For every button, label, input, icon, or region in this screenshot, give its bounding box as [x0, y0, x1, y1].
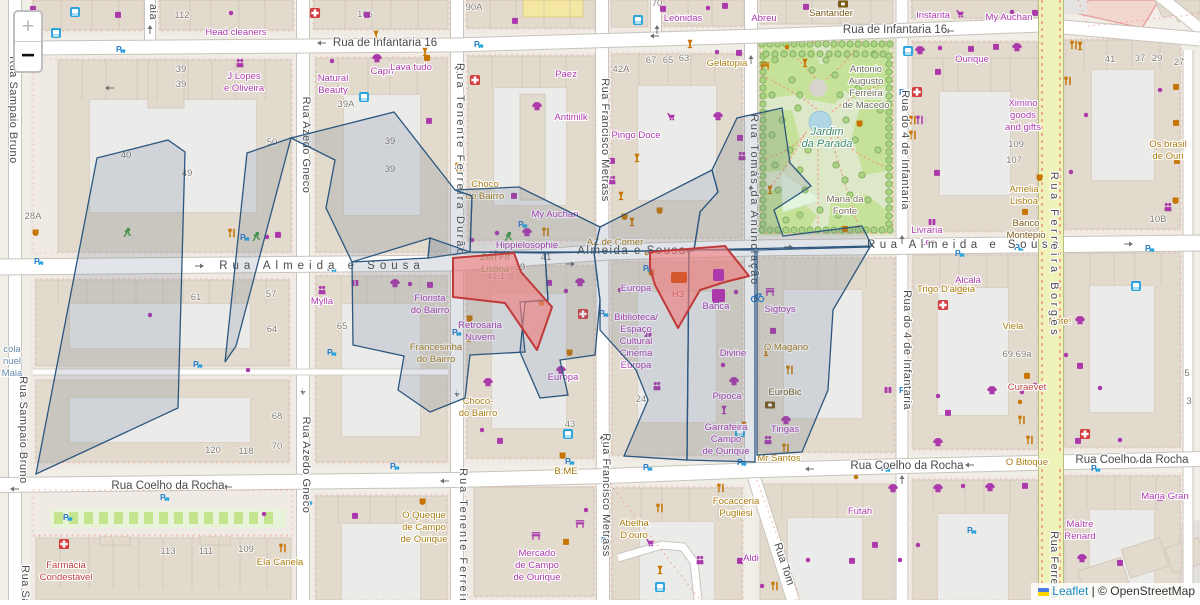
svg-text:67: 67: [646, 55, 657, 66]
svg-text:My Auchan: My Auchan: [986, 12, 1033, 23]
svg-text:29: 29: [1152, 53, 1163, 64]
svg-text:da Parada: da Parada: [802, 138, 853, 150]
svg-text:Maria Gran: Maria Gran: [1141, 491, 1189, 502]
svg-text:Mylla: Mylla: [311, 296, 334, 307]
svg-text:41: 41: [1105, 54, 1116, 65]
svg-text:Rua Azedo Gneco: Rua Azedo Gneco: [300, 417, 312, 514]
svg-text:O Queque: O Queque: [402, 510, 446, 521]
svg-text:Rua do 4 de Infantaria: Rua do 4 de Infantaria: [899, 90, 911, 210]
svg-text:Banco: Banco: [1013, 218, 1040, 229]
svg-text:Paez: Paez: [555, 69, 577, 80]
svg-text:Rua de Infantaria 16: Rua de Infantaria 16: [843, 24, 947, 36]
svg-text:e Oliveira: e Oliveira: [224, 83, 265, 94]
svg-text:10B: 10B: [1150, 214, 1167, 225]
svg-text:Rua Ferreira Borges: Rua Ferreira Borges: [1048, 172, 1060, 338]
svg-text:Focacceria: Focacceria: [713, 496, 760, 507]
svg-text:goods: goods: [1010, 110, 1036, 121]
svg-text:Santander: Santander: [809, 8, 853, 19]
svg-text:Rua Sa: Rua Sa: [19, 565, 31, 600]
svg-text:63: 63: [679, 53, 690, 64]
svg-text:Abelha: Abelha: [619, 518, 649, 529]
svg-text:39: 39: [176, 64, 187, 75]
svg-text:64: 64: [267, 324, 278, 335]
svg-text:3: 3: [1186, 396, 1191, 407]
svg-text:39: 39: [176, 79, 187, 90]
svg-text:Gelatopia: Gelatopia: [707, 58, 748, 69]
svg-text:Abreu: Abreu: [751, 13, 776, 24]
svg-text:Pingo Doce: Pingo Doce: [611, 130, 660, 141]
svg-text:39A: 39A: [338, 99, 356, 110]
svg-text:Amelia: Amelia: [1009, 184, 1039, 195]
svg-text:Rua Francisco Metrass: Rua Francisco Metrass: [599, 78, 611, 202]
svg-text:109: 109: [238, 544, 254, 555]
svg-text:Maria da: Maria da: [827, 194, 865, 205]
svg-text:24: 24: [636, 394, 647, 405]
svg-text:111: 111: [199, 546, 213, 557]
svg-text:69.69a: 69.69a: [1002, 349, 1032, 360]
svg-text:28A: 28A: [25, 211, 43, 222]
svg-text:Viela: Viela: [1003, 321, 1025, 332]
svg-text:de Ouri: de Ouri: [1152, 151, 1183, 162]
svg-text:107: 107: [1006, 155, 1022, 166]
svg-text:5: 5: [1184, 368, 1189, 379]
svg-text:Ourique: Ourique: [955, 54, 989, 65]
svg-text:Os brasil: Os brasil: [1149, 139, 1186, 150]
svg-text:J Lopes: J Lopes: [227, 71, 261, 82]
svg-text:cola: cola: [3, 344, 21, 355]
svg-text:Rua do 4 de Infantaria: Rua do 4 de Infantaria: [901, 290, 913, 410]
svg-text:112: 112: [174, 10, 189, 21]
svg-text:Beauty: Beauty: [318, 85, 348, 96]
svg-text:Rua Tenente Ferreira: Rua Tenente Ferreira: [457, 468, 469, 600]
svg-text:Renard: Renard: [1064, 531, 1095, 542]
svg-text:nuel: nuel: [3, 356, 21, 367]
svg-text:de Ourique: de Ourique: [400, 534, 447, 545]
svg-text:43: 43: [565, 419, 576, 430]
svg-text:61: 61: [191, 292, 202, 303]
svg-text:68: 68: [272, 411, 283, 422]
svg-text:57: 57: [266, 289, 277, 300]
svg-text:do Bairro: do Bairro: [459, 408, 498, 419]
svg-text:de Campo: de Campo: [402, 522, 446, 533]
svg-text:113: 113: [160, 546, 175, 557]
svg-text:O Bitoque: O Bitoque: [1006, 457, 1048, 468]
svg-text:Instanta: Instanta: [916, 10, 951, 21]
svg-text:27: 27: [1174, 57, 1185, 68]
svg-text:Condestável: Condestável: [40, 572, 93, 583]
svg-text:Farmácia: Farmácia: [46, 560, 86, 571]
svg-text:de Ourique: de Ourique: [513, 572, 560, 583]
svg-text:Ferreira: Ferreira: [849, 88, 883, 99]
svg-text:120: 120: [205, 445, 221, 456]
svg-text:Natural: Natural: [318, 73, 349, 84]
svg-text:Lisboa: Lisboa: [1010, 196, 1039, 207]
svg-text:Rua Coelho da Rocha: Rua Coelho da Rocha: [111, 480, 225, 492]
svg-text:Antimilk: Antimilk: [554, 112, 588, 123]
svg-text:65: 65: [337, 321, 348, 332]
svg-text:Ela Canela: Ela Canela: [257, 557, 304, 568]
svg-text:Alcalá: Alcalá: [955, 275, 982, 286]
svg-text:de Macedo: de Macedo: [842, 100, 889, 111]
svg-text:Rua de Infantaria 16: Rua de Infantaria 16: [333, 37, 437, 49]
svg-text:Leónidas: Leónidas: [664, 13, 703, 24]
svg-text:118: 118: [238, 446, 253, 457]
svg-text:Fonte: Fonte: [833, 206, 857, 217]
svg-text:Choco-: Choco-: [463, 396, 494, 407]
svg-text:Rua Almeida e Sousa: Rua Almeida e Sousa: [867, 239, 1063, 251]
svg-text:Augusto: Augusto: [849, 76, 884, 87]
svg-text:Rua Sampaio Bruno: Rua Sampaio Bruno: [17, 376, 29, 484]
svg-text:de Campo: de Campo: [515, 560, 559, 571]
svg-text:aia: aia: [147, 4, 159, 21]
svg-text:90A: 90A: [466, 2, 484, 13]
svg-text:Rua Francisco Metrass: Rua Francisco Metrass: [600, 433, 612, 557]
svg-text:Futah: Futah: [848, 506, 872, 517]
svg-text:Curaevet: Curaevet: [1008, 382, 1047, 393]
svg-text:Livraria: Livraria: [911, 225, 943, 236]
svg-text:37: 37: [1135, 53, 1146, 64]
svg-text:Aldi: Aldi: [743, 553, 759, 564]
svg-text:D'ouro: D'ouro: [620, 530, 648, 541]
svg-text:and gifts: and gifts: [1005, 122, 1041, 133]
svg-text:Ximino: Ximino: [1008, 98, 1037, 109]
svg-text:Pugliesi: Pugliesi: [719, 508, 752, 519]
svg-text:Rua Coelho da Rocha: Rua Coelho da Rocha: [1075, 454, 1189, 466]
svg-text:42A: 42A: [613, 64, 631, 75]
svg-text:Lava tudo: Lava tudo: [390, 62, 432, 73]
svg-text:Jardim: Jardim: [809, 126, 843, 138]
svg-text:Maître: Maître: [1067, 519, 1094, 530]
svg-text:70: 70: [272, 441, 283, 452]
svg-text:109: 109: [1008, 139, 1024, 150]
svg-text:Rua Coelho da Rocha: Rua Coelho da Rocha: [850, 460, 964, 472]
svg-text:Mercado: Mercado: [519, 548, 556, 559]
svg-text:65: 65: [663, 55, 674, 66]
svg-text:Head cleaners: Head cleaners: [205, 27, 267, 38]
svg-text:Antonio: Antonio: [850, 64, 882, 75]
svg-text:B.ME: B.ME: [554, 466, 577, 477]
